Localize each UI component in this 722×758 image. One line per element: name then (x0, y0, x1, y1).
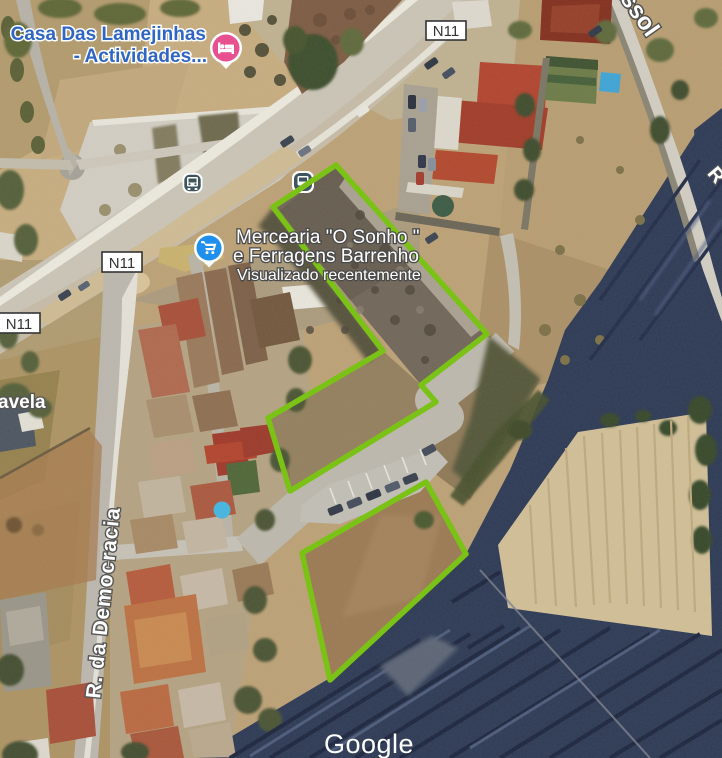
svg-text:Visualizado recentemente: Visualizado recentemente (237, 267, 421, 284)
svg-text:avela: avela (0, 392, 46, 413)
svg-text:Google: Google (324, 729, 414, 758)
svg-text:Mercearia "O Sonho ": Mercearia "O Sonho " (236, 227, 420, 248)
svg-text:Casa Das Lamejinhas: Casa Das Lamejinhas (11, 24, 206, 45)
svg-text:- Actividades...: - Actividades... (74, 46, 207, 67)
svg-text:N11: N11 (6, 316, 32, 333)
svg-text:N11: N11 (433, 23, 459, 40)
svg-text:e Ferragens Barrenho: e Ferragens Barrenho (233, 246, 419, 267)
svg-text:N11: N11 (109, 255, 135, 272)
